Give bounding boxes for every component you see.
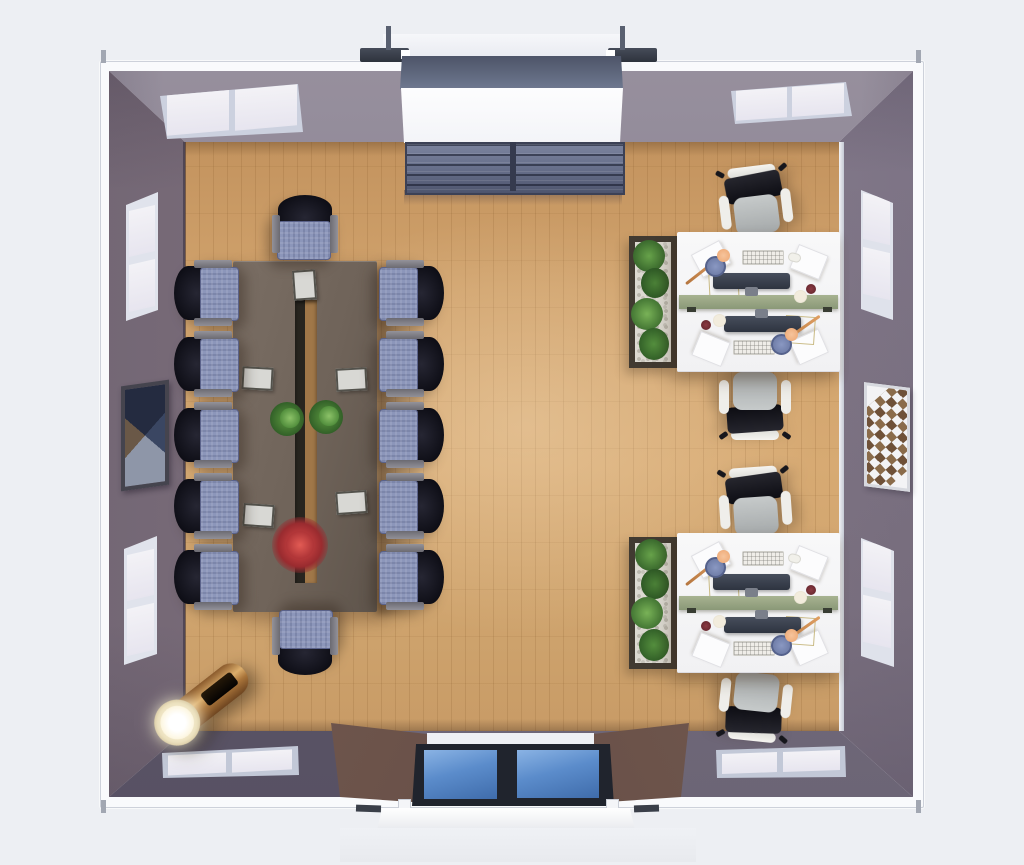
- entrance-opening: [401, 88, 623, 143]
- chair-seat: [279, 610, 333, 649]
- window-pane: [168, 752, 226, 775]
- chair-seat: [277, 221, 331, 260]
- workstation-upper: [625, 232, 840, 372]
- mug: [806, 585, 816, 595]
- glass-door-pane-left: [424, 750, 497, 799]
- conference-chair: [378, 336, 444, 392]
- window-pane: [232, 749, 292, 772]
- chair-armrest: [386, 318, 424, 326]
- entry-apron: [340, 828, 696, 862]
- chair-armrest: [194, 544, 232, 552]
- chair-armrest: [780, 491, 792, 526]
- planter-plant: [641, 268, 669, 298]
- window-left-upper: [124, 190, 160, 323]
- divider-foot: [823, 608, 832, 613]
- coaster: [713, 615, 726, 628]
- divider-foot: [823, 307, 832, 312]
- chair-armrest: [194, 473, 232, 481]
- notepad: [335, 367, 367, 392]
- chair-seat: [200, 480, 239, 534]
- chair-armrest: [386, 602, 424, 610]
- wall-art-triangles: [121, 380, 169, 492]
- glass-door-pane-right: [517, 750, 599, 798]
- chair-armrest: [194, 318, 232, 326]
- monitor-stand: [745, 588, 758, 597]
- chair-armrest: [194, 331, 232, 339]
- door-step: [377, 808, 635, 830]
- coaster: [794, 290, 807, 303]
- window-pane: [235, 84, 297, 130]
- mug: [701, 320, 711, 330]
- chair-seat: [200, 551, 239, 605]
- keyboard: [733, 641, 775, 656]
- conference-chair-foot: [277, 609, 333, 675]
- entrance-canopy: [383, 34, 625, 59]
- chair-armrest: [719, 380, 729, 414]
- desk-lamp-base: [785, 328, 798, 341]
- floorplan-render: [0, 0, 1024, 865]
- window-pane: [129, 205, 155, 257]
- chair-seat: [733, 372, 777, 410]
- chair-armrest: [194, 460, 232, 468]
- conference-chair-head: [277, 195, 333, 261]
- window-pane: [129, 259, 155, 312]
- window-pane: [127, 549, 154, 601]
- chair-seat: [200, 338, 239, 392]
- desk-lamp-base: [785, 629, 798, 642]
- chair-back: [414, 337, 444, 391]
- keyboard: [742, 250, 784, 265]
- conference-chair: [378, 407, 444, 463]
- chair-armrest: [386, 544, 424, 552]
- conference-chair: [174, 265, 240, 321]
- conference-chair: [174, 478, 240, 534]
- window-pane: [863, 193, 890, 245]
- planter-plant: [639, 328, 669, 360]
- chair-armrest: [330, 617, 338, 655]
- chair-back: [414, 550, 444, 604]
- diamond-pattern: [864, 382, 910, 492]
- roof-corner-tick: [101, 800, 106, 813]
- chair-seat: [200, 267, 239, 321]
- chair-armrest: [386, 402, 424, 410]
- chair-armrest: [780, 188, 794, 223]
- chair-seat: [733, 193, 781, 236]
- desk-lamp-base: [717, 550, 730, 563]
- keyboard: [733, 340, 775, 355]
- door-ledge-right: [634, 805, 659, 813]
- workstation-lower: [625, 533, 840, 673]
- notepad: [241, 366, 273, 391]
- roof-corner-tick: [101, 50, 106, 63]
- planter-plant: [631, 597, 663, 629]
- keyboard: [742, 551, 784, 566]
- chair-armrest: [194, 602, 232, 610]
- window-right-upper: [858, 188, 895, 322]
- chair-armrest: [272, 617, 280, 655]
- mug: [701, 621, 711, 631]
- window-pane: [722, 752, 777, 774]
- roof-corner-tick: [916, 50, 921, 63]
- window-pane: [736, 87, 787, 121]
- green-plant-highlight: [319, 406, 339, 426]
- chair-armrest: [781, 380, 791, 414]
- chair-back: [414, 266, 444, 320]
- conference-chair: [174, 549, 240, 605]
- window-left-lower: [122, 534, 159, 667]
- monitor-stand: [745, 287, 758, 296]
- canopy-post-right: [620, 26, 625, 50]
- canopy-post-left: [386, 26, 391, 50]
- chair-seat: [379, 480, 418, 534]
- green-plant-highlight: [280, 408, 300, 428]
- divider-foot: [687, 307, 696, 312]
- flashlight-slot: [200, 671, 239, 706]
- window-pane: [783, 750, 840, 772]
- conference-chair: [378, 549, 444, 605]
- entrance-header: [400, 56, 623, 89]
- chair-armrest: [780, 684, 793, 719]
- chair-seat: [379, 338, 418, 392]
- window-pane: [863, 595, 891, 648]
- bookshelf-divider: [510, 142, 516, 191]
- conference-chair: [174, 336, 240, 392]
- chair-armrest: [194, 260, 232, 268]
- chair-seat: [379, 551, 418, 605]
- notepad: [292, 269, 317, 301]
- coaster: [713, 314, 726, 327]
- monitor-stand: [755, 309, 768, 318]
- coaster: [794, 591, 807, 604]
- mug: [806, 284, 816, 294]
- chair-seat: [733, 671, 781, 713]
- planter-plant: [633, 240, 665, 272]
- conference-chair: [378, 265, 444, 321]
- task-chair: [715, 464, 796, 539]
- chair-armrest: [386, 473, 424, 481]
- chair-armrest: [386, 331, 424, 339]
- window-pane: [127, 603, 154, 656]
- chair-armrest: [386, 260, 424, 268]
- wall-art-diamonds: [864, 382, 910, 492]
- chair-armrest: [194, 389, 232, 397]
- chair-armrest: [194, 531, 232, 539]
- window-pane: [792, 83, 844, 117]
- chair-armrest: [386, 460, 424, 468]
- window-pane: [863, 247, 890, 300]
- window-right-lower: [858, 536, 896, 669]
- task-chair: [714, 667, 797, 745]
- planter-plant: [641, 569, 669, 599]
- planter-plant: [635, 539, 667, 571]
- chair-back: [414, 479, 444, 533]
- chair-seat: [379, 267, 418, 321]
- task-chair: [713, 162, 797, 241]
- chair-armrest: [194, 402, 232, 410]
- chair-seat: [733, 495, 780, 536]
- chair-armrest: [330, 215, 338, 253]
- monitor-stand: [755, 610, 768, 619]
- conference-chair: [174, 407, 240, 463]
- window-pane: [167, 89, 229, 135]
- chair-armrest: [272, 215, 280, 253]
- chair-armrest: [386, 389, 424, 397]
- roof-corner-tick: [916, 800, 921, 813]
- desk-divider-shelf: [679, 596, 838, 610]
- planter-plant: [639, 629, 669, 661]
- door-ledge-left: [356, 805, 381, 813]
- window-pane: [863, 541, 891, 593]
- chair-back: [278, 645, 332, 675]
- desk-lamp-base: [717, 249, 730, 262]
- planter-plant: [631, 298, 663, 330]
- conference-chair: [378, 478, 444, 534]
- desk-divider-shelf: [679, 295, 838, 309]
- chair-armrest: [386, 531, 424, 539]
- task-chair: [717, 370, 793, 440]
- notepad: [335, 490, 368, 515]
- red-plant-center: [286, 531, 314, 559]
- notepad: [242, 503, 275, 528]
- chair-back: [414, 408, 444, 462]
- chair-seat: [379, 409, 418, 463]
- chair-seat: [200, 409, 239, 463]
- divider-foot: [687, 608, 696, 613]
